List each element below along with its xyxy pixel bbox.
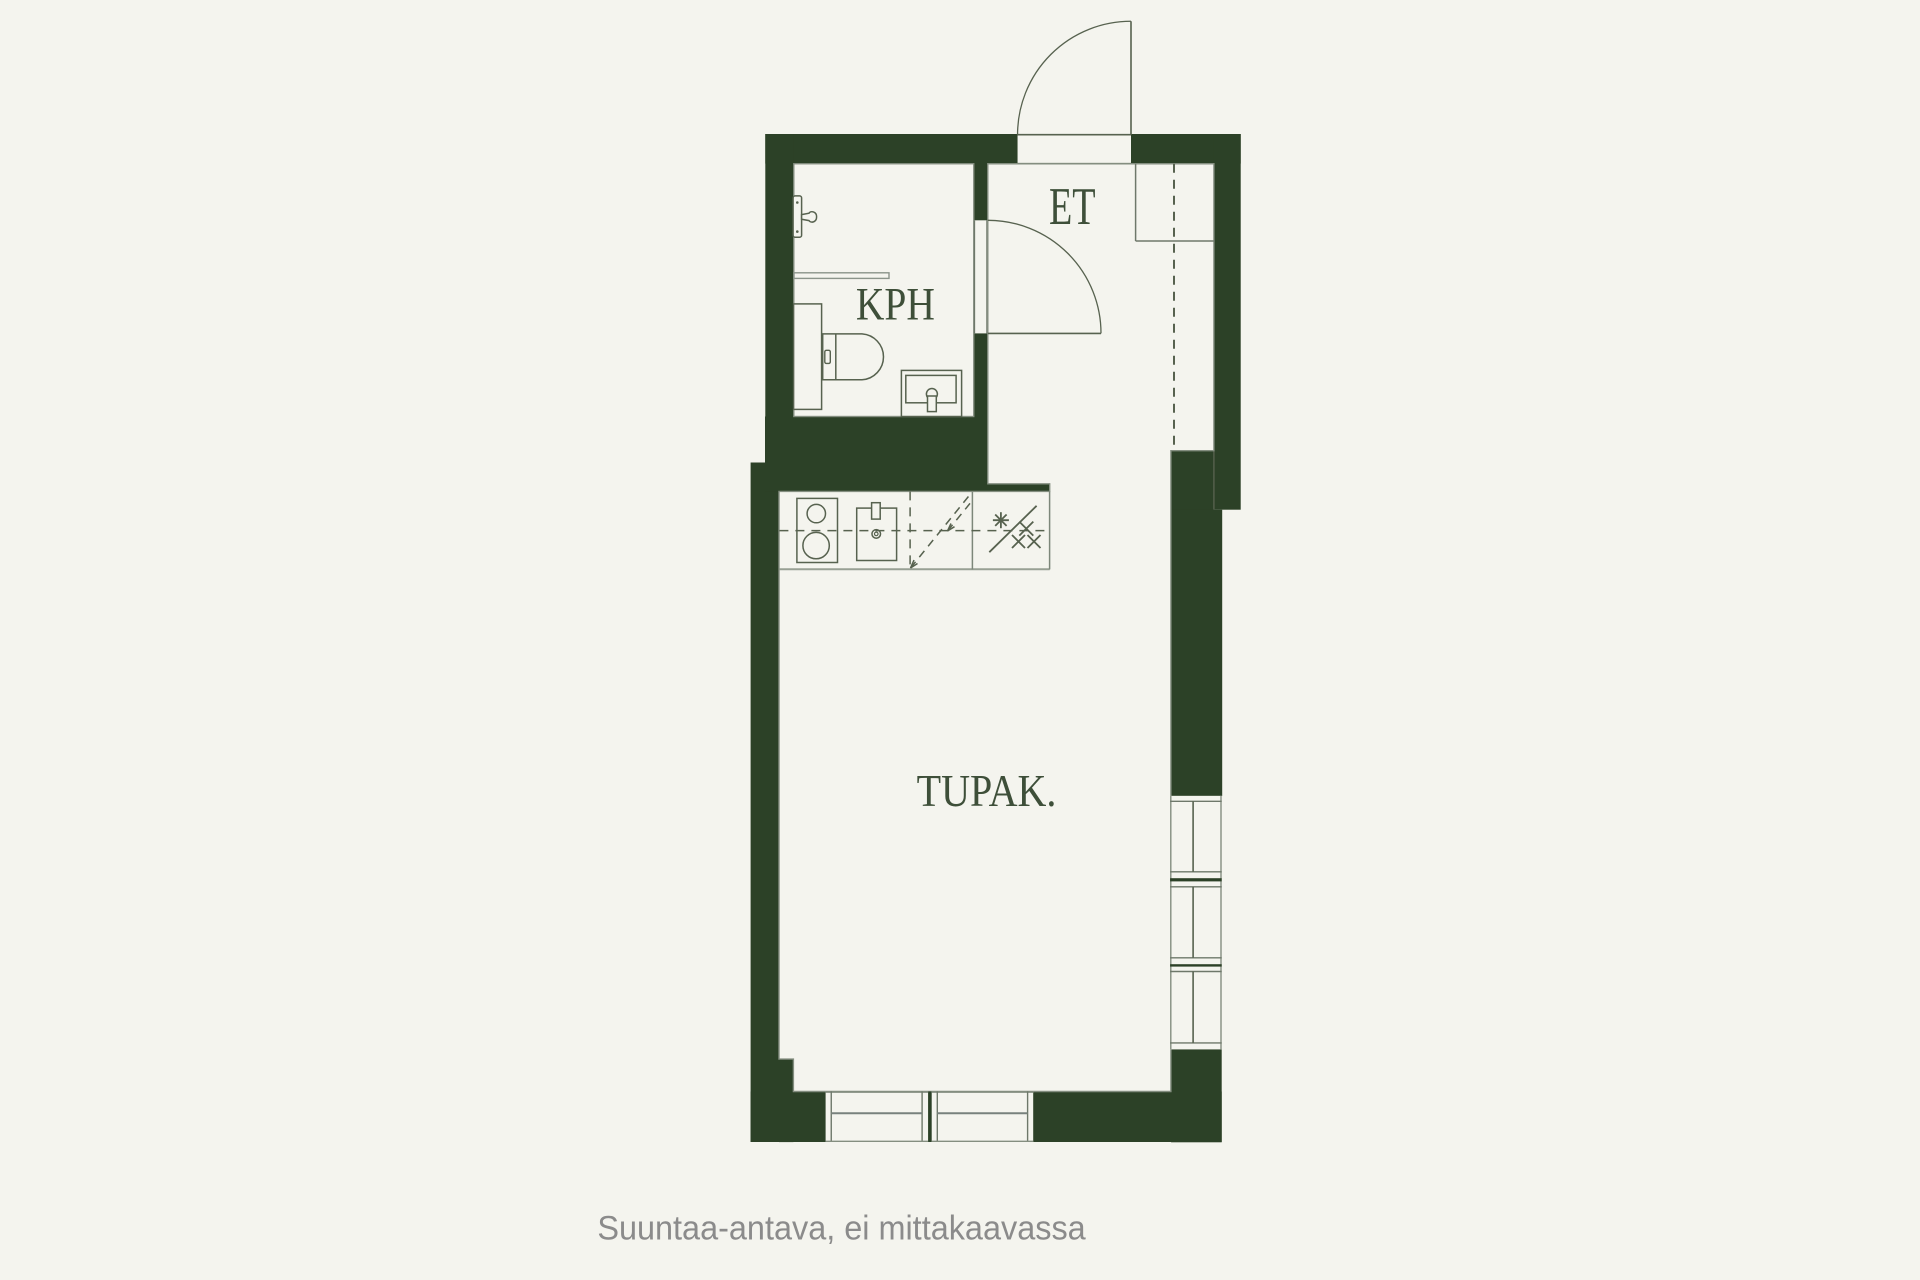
svg-text:ET: ET (1049, 177, 1096, 236)
svg-text:TUPAK.: TUPAK. (917, 767, 1057, 817)
svg-text:Suuntaa-antava, ei mittakaavas: Suuntaa-antava, ei mittakaavassa (597, 1210, 1086, 1248)
svg-text:KPH: KPH (856, 279, 935, 331)
